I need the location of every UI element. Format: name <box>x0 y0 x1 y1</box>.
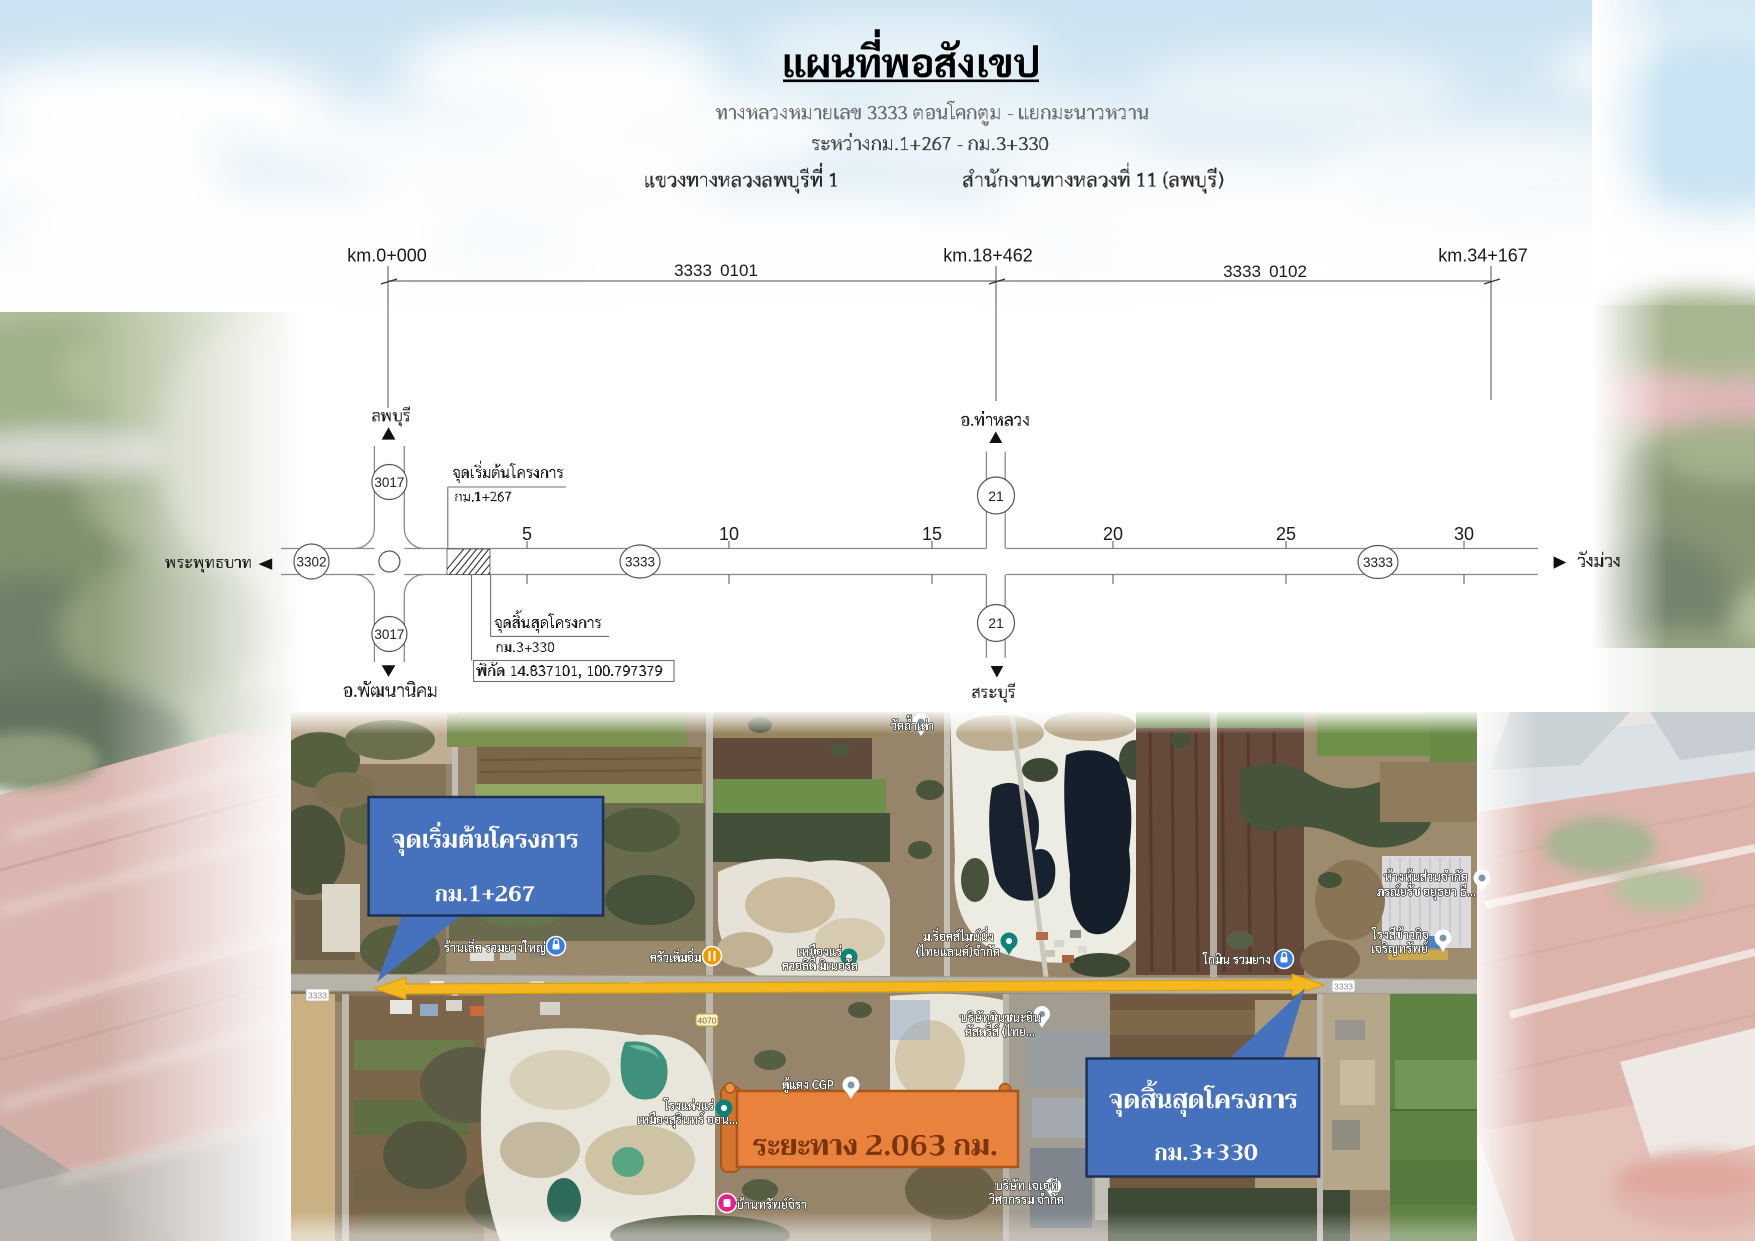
svg-text:3333: 3333 <box>1223 262 1261 281</box>
svg-text:3017: 3017 <box>374 475 404 490</box>
svg-text:km.18+462: km.18+462 <box>943 246 1033 266</box>
svg-text:0101: 0101 <box>720 261 758 280</box>
svg-text:3302: 3302 <box>296 555 326 570</box>
svg-text:25: 25 <box>1276 524 1296 544</box>
svg-text:3333: 3333 <box>308 991 327 1001</box>
svg-text:3333: 3333 <box>674 261 712 280</box>
svg-text:3333: 3333 <box>625 555 655 570</box>
svg-text:5: 5 <box>522 524 532 544</box>
svg-text:15: 15 <box>922 524 942 544</box>
svg-text:3333: 3333 <box>1363 555 1393 570</box>
svg-text:0102: 0102 <box>1269 262 1307 281</box>
svg-text:3017: 3017 <box>374 627 404 642</box>
svg-text:21: 21 <box>988 488 1004 504</box>
svg-text:km.0+000: km.0+000 <box>347 246 427 266</box>
svg-text:21: 21 <box>988 615 1004 631</box>
svg-text:20: 20 <box>1103 524 1123 544</box>
svg-text:10: 10 <box>719 524 739 544</box>
svg-text:km.34+167: km.34+167 <box>1438 246 1528 266</box>
svg-text:30: 30 <box>1454 524 1474 544</box>
svg-text:3333: 3333 <box>1334 982 1353 992</box>
svg-text:4070: 4070 <box>698 1016 717 1026</box>
